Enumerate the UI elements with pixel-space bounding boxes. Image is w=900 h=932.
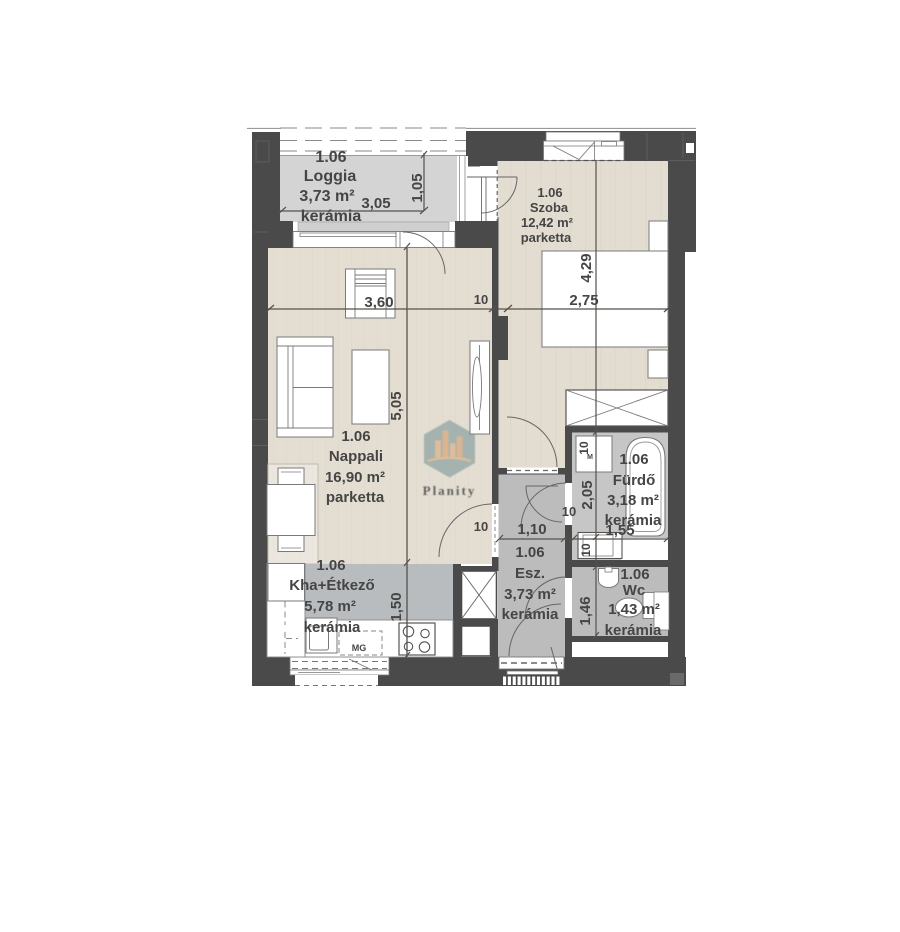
svg-text:5,05: 5,05 — [388, 391, 405, 420]
svg-text:1.06: 1.06 — [341, 428, 370, 445]
svg-text:3,60: 3,60 — [364, 294, 393, 311]
svg-text:Planity: Planity — [423, 483, 477, 498]
svg-text:10: 10 — [562, 504, 576, 519]
svg-text:kerámia: kerámia — [605, 622, 662, 639]
svg-text:1.06: 1.06 — [619, 451, 648, 468]
svg-text:Wc: Wc — [623, 582, 646, 599]
svg-text:kerámia: kerámia — [301, 208, 362, 225]
svg-text:3,18 m²: 3,18 m² — [607, 492, 659, 509]
svg-text:MG: MG — [352, 643, 367, 653]
svg-text:1,10: 1,10 — [517, 521, 546, 538]
svg-text:10: 10 — [577, 441, 591, 455]
svg-text:Szoba: Szoba — [530, 200, 569, 215]
svg-text:1.06: 1.06 — [537, 185, 562, 200]
svg-text:3,05: 3,05 — [361, 195, 390, 212]
svg-text:10: 10 — [474, 519, 488, 534]
svg-text:16,90 m²: 16,90 m² — [325, 469, 385, 486]
svg-text:10: 10 — [579, 543, 593, 557]
svg-text:1,46: 1,46 — [577, 596, 594, 625]
svg-text:kerámia: kerámia — [502, 606, 559, 623]
svg-text:Loggia: Loggia — [304, 168, 357, 185]
svg-text:2,05: 2,05 — [579, 480, 596, 509]
svg-text:10: 10 — [474, 292, 488, 307]
svg-text:1.06: 1.06 — [515, 544, 544, 561]
svg-text:4,29: 4,29 — [578, 253, 595, 282]
svg-text:1.06: 1.06 — [315, 149, 346, 166]
svg-text:1,55: 1,55 — [605, 522, 634, 539]
svg-text:5,78 m²: 5,78 m² — [304, 598, 356, 615]
svg-text:12,42 m²: 12,42 m² — [521, 215, 574, 230]
svg-text:1,05: 1,05 — [409, 173, 426, 202]
svg-text:1,43 m²: 1,43 m² — [608, 601, 660, 618]
svg-text:3,73 m²: 3,73 m² — [504, 586, 556, 603]
svg-text:parketta: parketta — [326, 489, 385, 506]
svg-text:1.06: 1.06 — [620, 566, 649, 583]
svg-text:parketta: parketta — [521, 230, 572, 245]
svg-text:1,50: 1,50 — [388, 592, 405, 621]
svg-text:Kha+Étkező: Kha+Étkező — [289, 577, 374, 594]
svg-text:2,75: 2,75 — [569, 292, 598, 309]
svg-text:3,73 m²: 3,73 m² — [299, 188, 354, 205]
svg-text:Esz.: Esz. — [515, 565, 545, 582]
svg-text:1.06: 1.06 — [316, 557, 345, 574]
svg-text:kerámia: kerámia — [304, 619, 361, 636]
svg-text:M: M — [587, 454, 593, 461]
svg-text:Nappali: Nappali — [329, 448, 383, 465]
svg-text:Fürdő: Fürdő — [613, 472, 656, 489]
